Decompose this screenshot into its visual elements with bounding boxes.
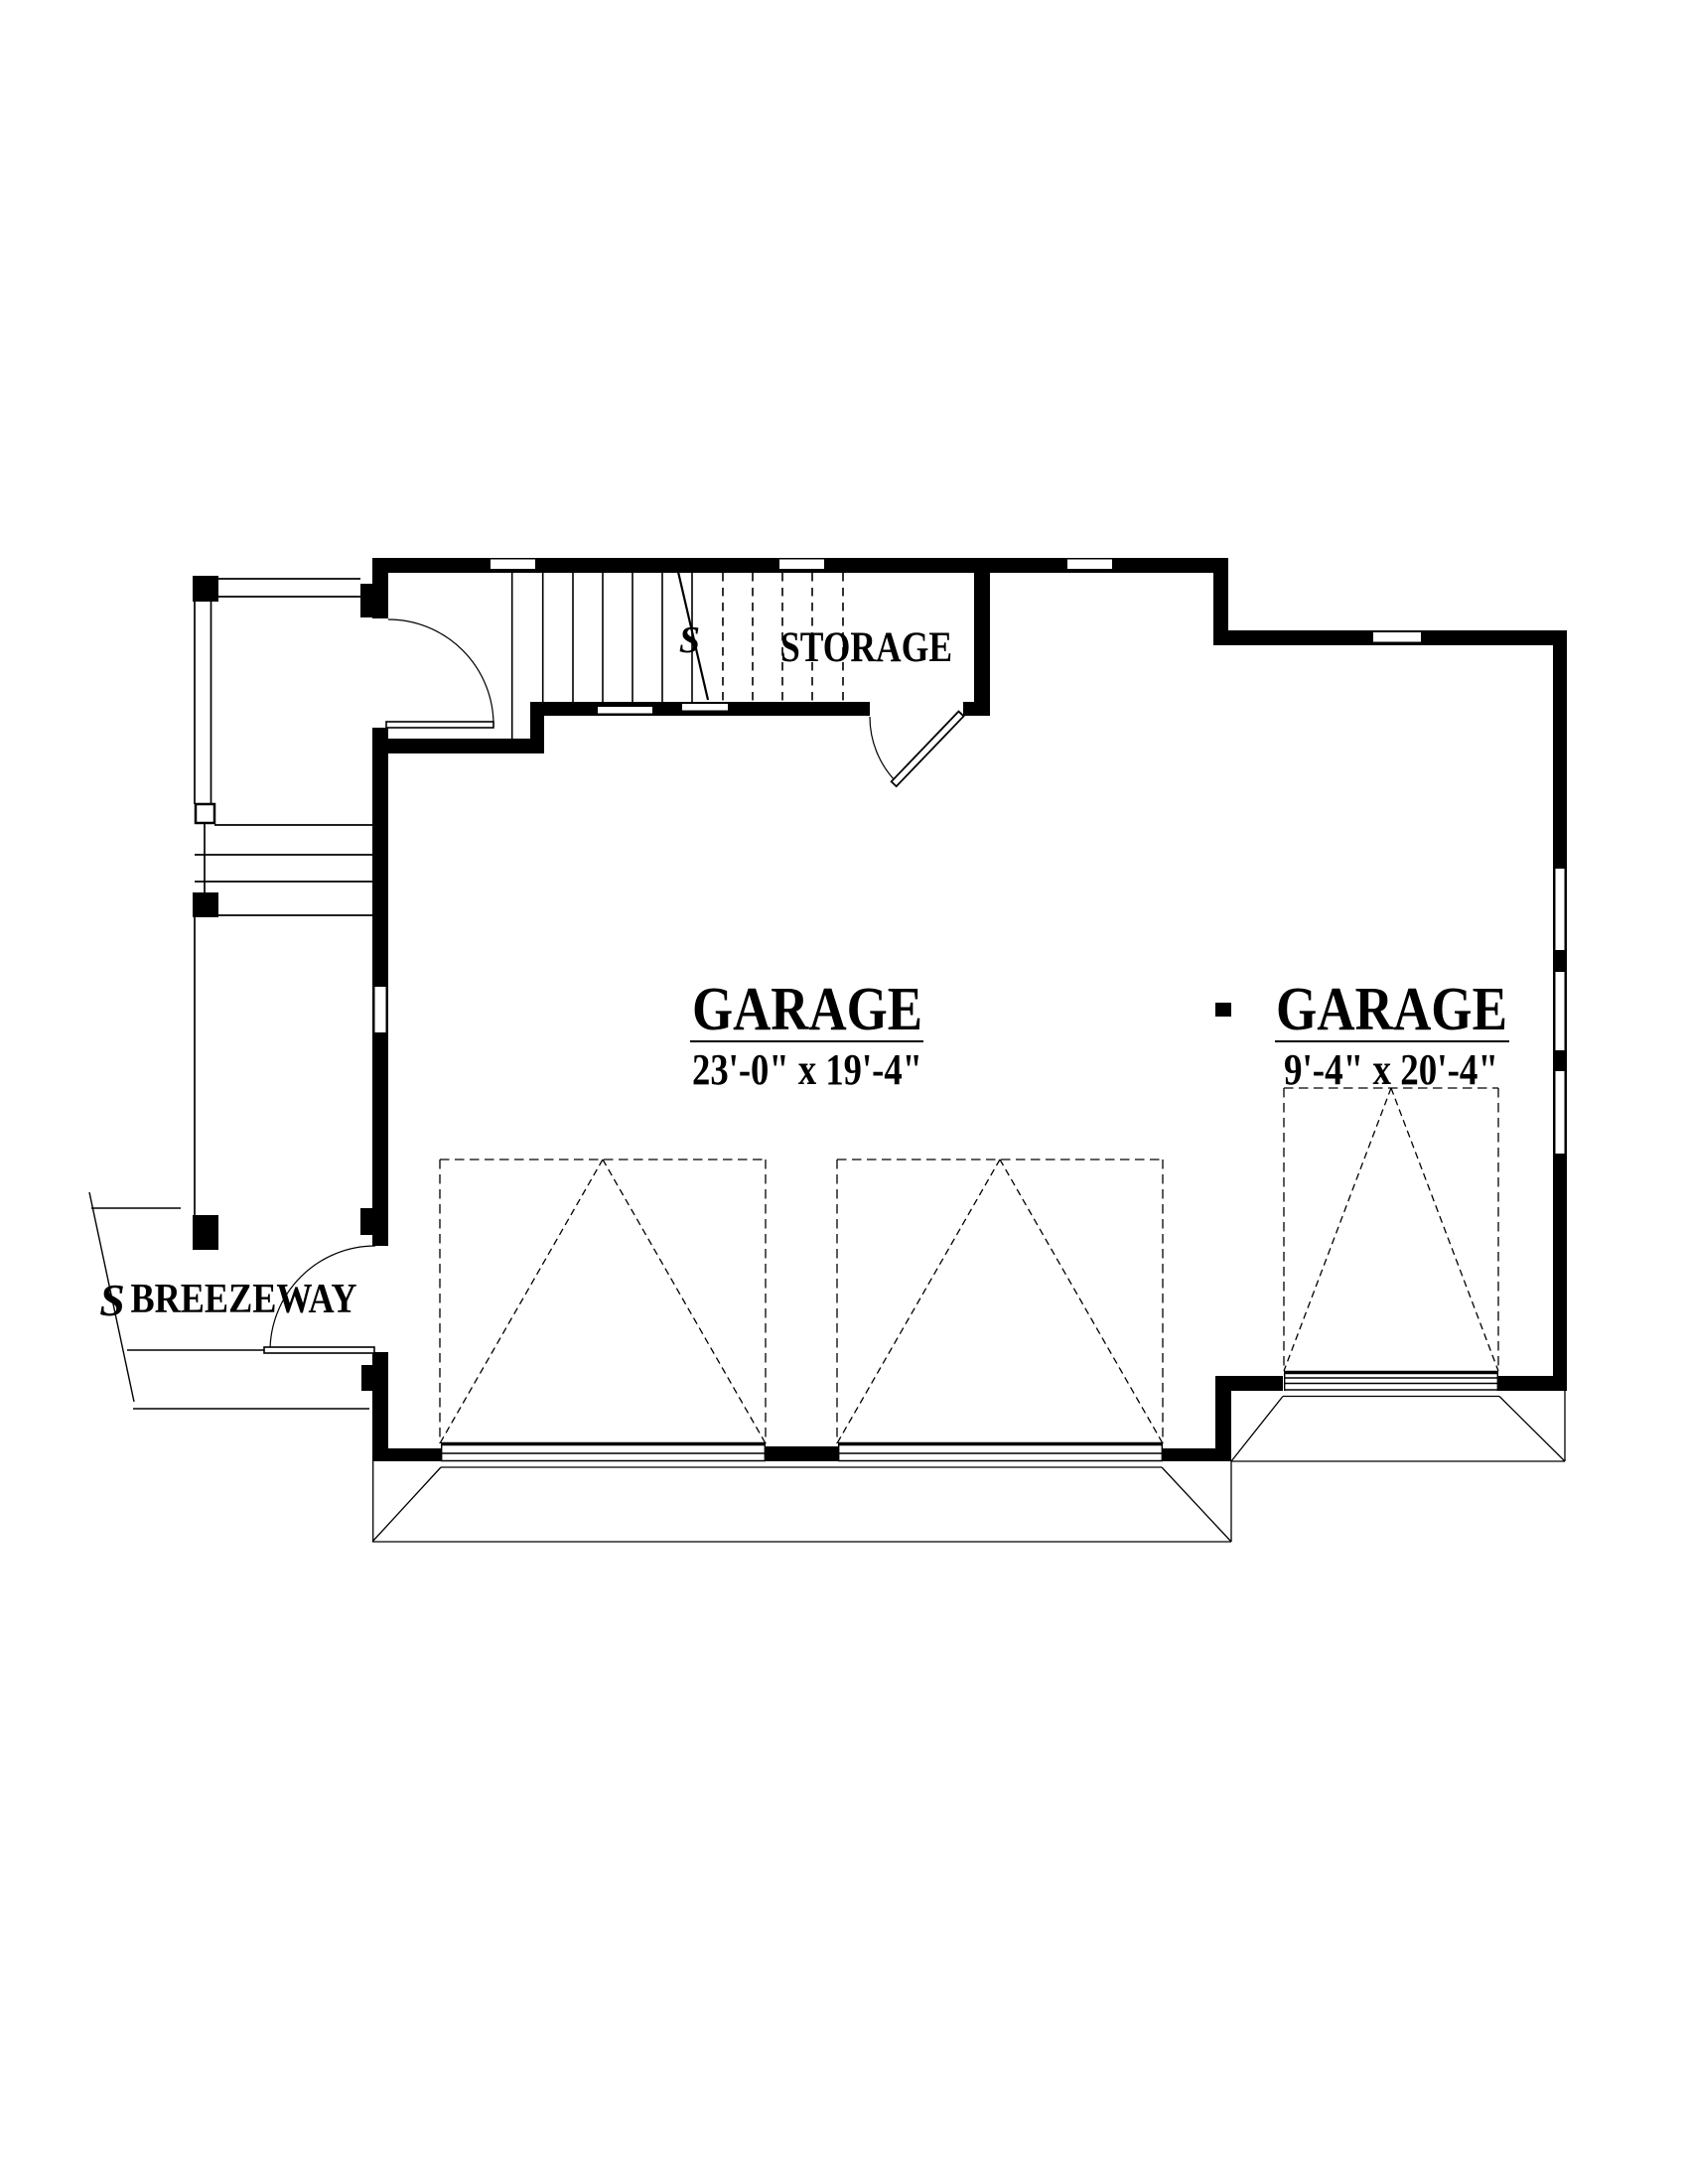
svg-text:GARAGE: GARAGE (1276, 976, 1507, 1043)
svg-text:GARAGE: GARAGE (692, 976, 922, 1043)
svg-text:S: S (679, 619, 700, 661)
svg-text:BREEZEWAY: BREEZEWAY (131, 1277, 357, 1322)
svg-text:23'-0" x 19'-4": 23'-0" x 19'-4" (692, 1045, 922, 1094)
svg-text:STORAGE: STORAGE (780, 624, 952, 671)
svg-text:S: S (99, 1275, 125, 1325)
svg-text:9'-4" x 20'-4": 9'-4" x 20'-4" (1284, 1045, 1498, 1094)
